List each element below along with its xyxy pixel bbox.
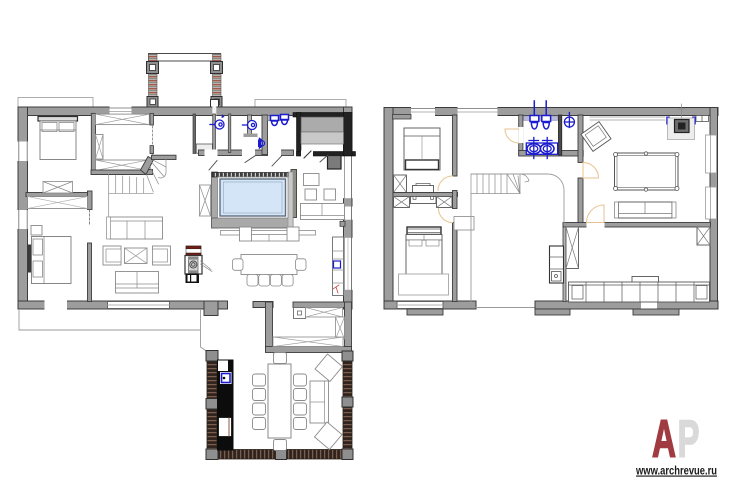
svg-text:www.archrevue.ru: www.archrevue.ru [635, 466, 717, 478]
svg-text:А: А [652, 410, 676, 469]
svg-text:Р: Р [678, 410, 700, 469]
